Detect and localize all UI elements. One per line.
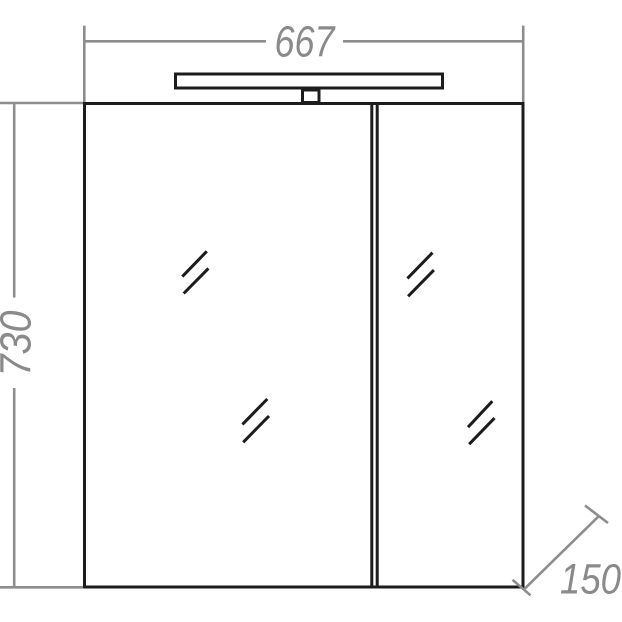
svg-text:730: 730 [0,310,41,376]
svg-text:667: 667 [275,18,336,67]
svg-text:150: 150 [560,556,621,604]
